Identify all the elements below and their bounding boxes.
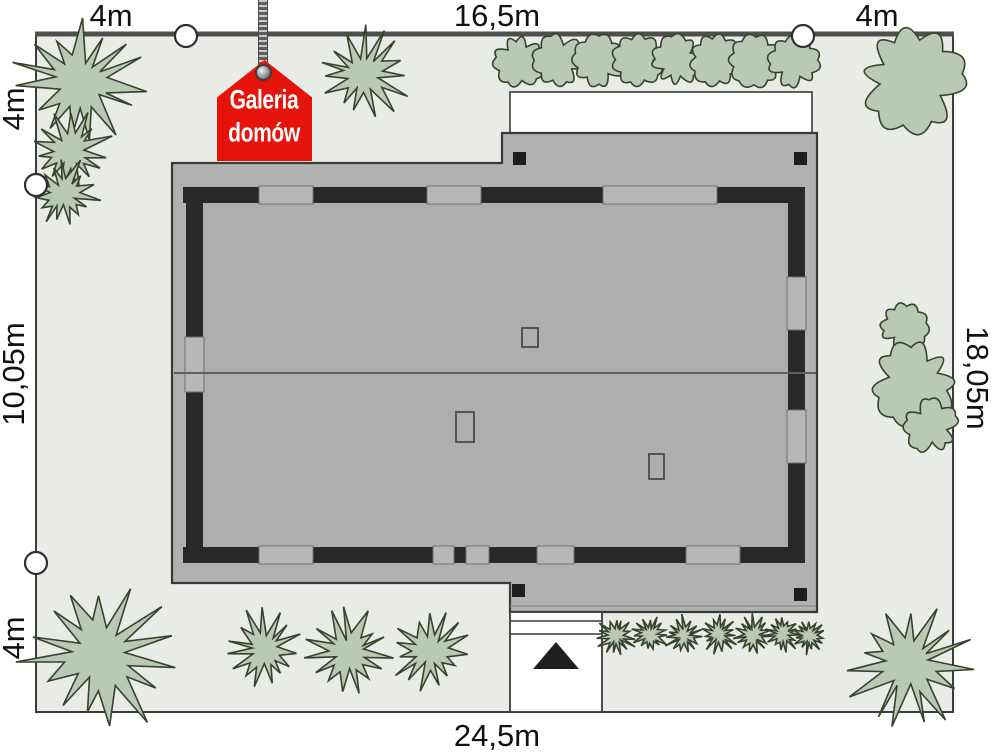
- site-plan: 4m 16,5m 4m 4m 10,05m 4m 18,05m 24,5m Ga…: [0, 0, 995, 754]
- dimension-top-right: 4m: [855, 0, 898, 34]
- chimney: [513, 152, 526, 165]
- boundary-marker: [25, 552, 47, 574]
- dimension-left-middle: 10,05m: [0, 322, 32, 425]
- window-opening: [185, 337, 204, 392]
- chimney: [512, 584, 525, 597]
- dimension-right-middle: 18,05m: [959, 326, 995, 429]
- boundary-marker: [175, 25, 197, 47]
- terrace: [510, 92, 812, 133]
- window-opening: [787, 410, 806, 463]
- dimension-bottom-center: 24,5m: [454, 718, 540, 754]
- dimension-left-top: 4m: [0, 87, 32, 130]
- boundary-marker: [25, 174, 47, 196]
- window-opening: [466, 546, 489, 564]
- chimney: [794, 152, 807, 165]
- window-opening: [259, 546, 313, 564]
- window-opening: [686, 546, 740, 564]
- dimension-top-center: 16,5m: [454, 0, 540, 34]
- window-opening: [787, 277, 806, 330]
- logo-chain: [258, 0, 268, 66]
- window-opening: [433, 546, 454, 564]
- house-interior: [203, 203, 788, 547]
- dimension-top-left: 4m: [89, 0, 132, 34]
- window-opening: [537, 546, 574, 564]
- logo-text-line1: Galeria: [230, 87, 299, 114]
- chimney: [794, 588, 807, 601]
- boundary-marker: [792, 25, 814, 47]
- dimension-left-bottom: 4m: [0, 616, 32, 659]
- site-plan-drawing: [0, 0, 995, 754]
- logo-text-line2: domów: [228, 120, 300, 147]
- window-opening: [427, 186, 481, 204]
- logo-grommet-icon: [255, 64, 272, 81]
- window-opening: [603, 186, 717, 204]
- window-opening: [259, 186, 313, 204]
